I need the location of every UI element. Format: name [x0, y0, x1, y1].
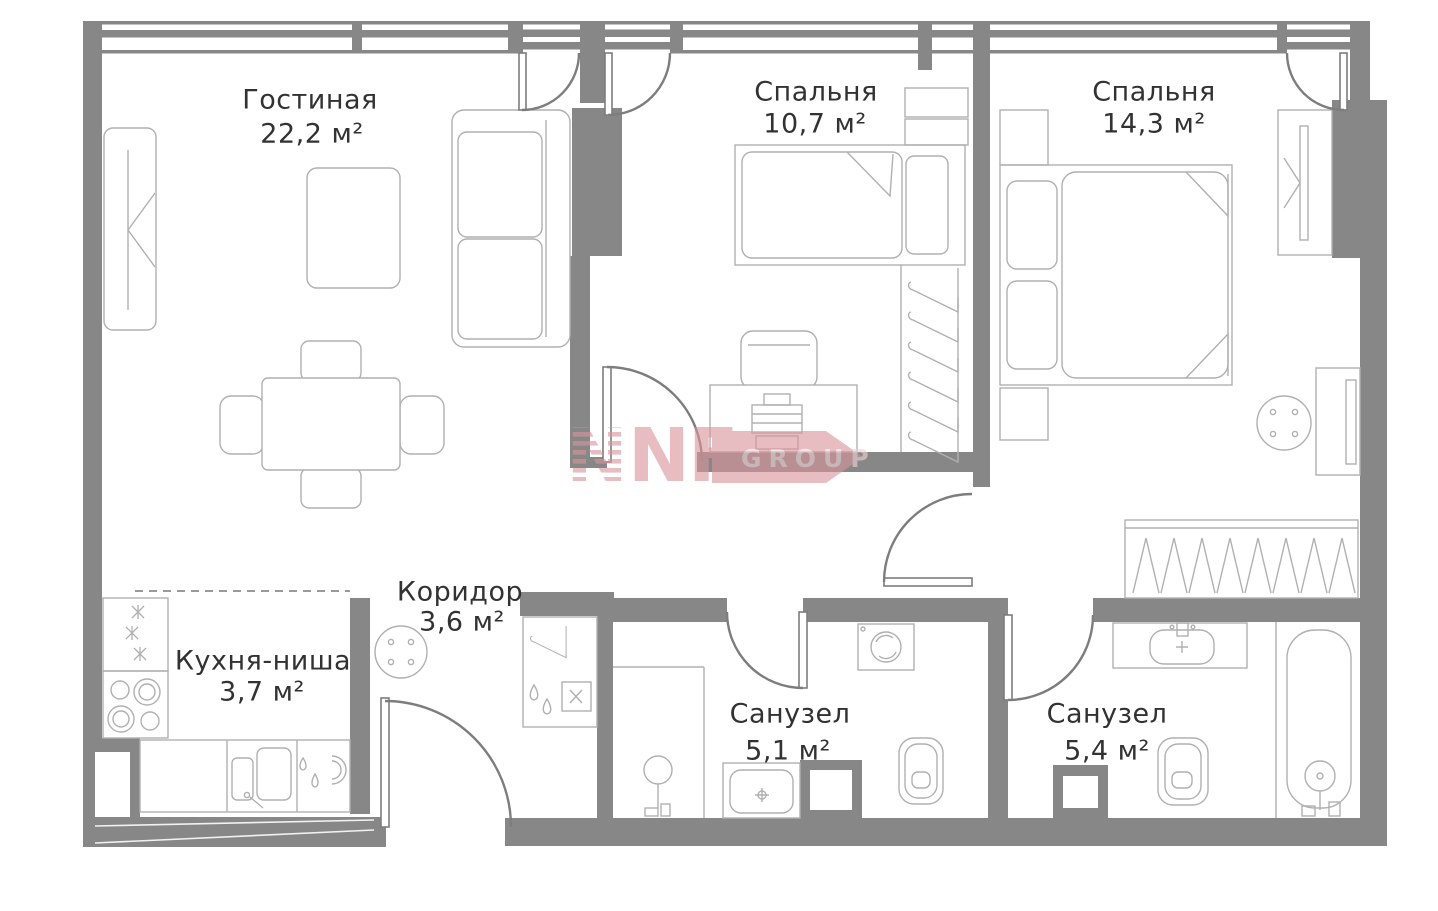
room-label-living: Гостиная [242, 85, 378, 116]
kitchen-counter [140, 740, 350, 812]
dining-table [220, 341, 444, 508]
single-bed [735, 145, 965, 265]
nightstand [1000, 388, 1048, 440]
room-label-bedroom2: Спальня [1092, 77, 1216, 108]
room-area-kitchen: 3,7 м² [219, 677, 305, 708]
dish-rack [332, 756, 346, 784]
wardrobe [104, 128, 156, 330]
door-bedroom2 [884, 494, 972, 586]
room-label-bathroom2: Санузел [1047, 699, 1168, 730]
coffee-table [307, 168, 400, 288]
room-area-corridor: 3,6 м² [419, 607, 505, 638]
shower [613, 667, 704, 818]
floorplan-drawing: N N F GROUP [0, 0, 1438, 911]
room-label-corridor: Коридор [397, 577, 523, 608]
hanger-rack [1125, 520, 1358, 598]
sofa [452, 110, 570, 347]
washing-machine [858, 624, 914, 670]
watermark-letter-n-striped: N [566, 413, 628, 499]
living-room-furniture [104, 110, 570, 508]
room-area-bedroom2: 14,3 м² [1102, 109, 1205, 140]
shelf [905, 119, 968, 145]
toilet [1158, 738, 1208, 805]
nightstand [1000, 110, 1048, 165]
fridge [103, 598, 168, 671]
side-table [1257, 396, 1311, 450]
watermark-group-text: GROUP [741, 444, 876, 473]
toilet [899, 738, 943, 804]
room-label-kitchen: Кухня-ниша [175, 646, 351, 677]
room-area-bedroom1: 10,7 м² [763, 109, 866, 140]
balcony-door-living-left [519, 53, 579, 110]
sink [1113, 623, 1247, 668]
balcony-door-living-right [605, 53, 670, 115]
entry-closet [523, 617, 597, 727]
bedroom1-furniture [710, 88, 968, 462]
bathtub [1276, 622, 1351, 818]
room-label-bedroom1: Спальня [754, 77, 878, 108]
door-bathroom1 [727, 612, 807, 688]
floorplan-canvas: N N F GROUP Гостиная 22,2 м² Спальня 10,… [0, 0, 1438, 911]
tv-console [1316, 368, 1360, 475]
room-area-living: 22,2 м² [260, 119, 363, 150]
bedroom2-furniture [1000, 110, 1360, 598]
watermark-letter-f: F [688, 413, 739, 499]
mirror-wardrobe [1278, 110, 1332, 255]
door-bathroom2 [1004, 615, 1093, 700]
closet-hangers [901, 265, 958, 462]
chair [741, 331, 817, 389]
room-area-bathroom1: 5,1 м² [745, 736, 831, 767]
shelf [905, 88, 968, 117]
double-bed [1000, 165, 1232, 385]
entrance-door [381, 698, 511, 827]
room-label-bathroom1: Санузел [730, 699, 851, 730]
stove [103, 671, 168, 738]
room-area-bathroom2: 5,4 м² [1064, 736, 1150, 767]
sink [723, 763, 800, 818]
watermark-letter-n: N [628, 413, 690, 499]
